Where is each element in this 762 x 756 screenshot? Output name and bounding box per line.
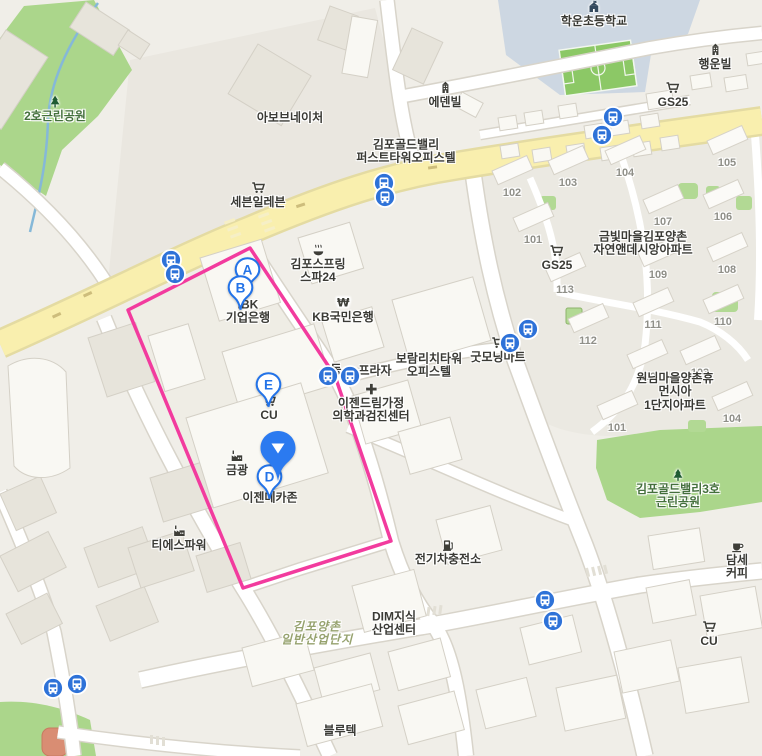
apartment-number[interactable]: 101 bbox=[524, 234, 542, 246]
poi-plaza[interactable]: 프라자 bbox=[358, 364, 391, 377]
apartment-number[interactable]: 102 bbox=[503, 187, 521, 199]
bus-stop-icon[interactable] bbox=[66, 673, 88, 695]
factory-icon bbox=[230, 449, 244, 463]
cart-icon bbox=[251, 181, 265, 195]
poi-gs25-right[interactable]: GS25 bbox=[542, 244, 573, 272]
poi-blutek[interactable]: 블루텍 bbox=[323, 724, 356, 737]
apartment-number[interactable]: 106 bbox=[714, 211, 732, 223]
coffee-icon bbox=[730, 539, 744, 553]
poi-boram-richtower-label: 보람리치타워 오피스텔 bbox=[396, 353, 462, 380]
poi-gimpo-industrial-complex[interactable]: 김포양촌 일반산업단지 bbox=[281, 621, 353, 648]
poi-goldvalley3-park[interactable]: 김포골드밸리3호 근린공원 bbox=[636, 468, 720, 510]
apartment-number[interactable]: 112 bbox=[579, 335, 597, 347]
svg-text:₩: ₩ bbox=[337, 296, 350, 310]
apartment-number[interactable]: 103 bbox=[559, 177, 577, 189]
apartment-number[interactable]: 107 bbox=[654, 216, 672, 228]
poi-seven-eleven[interactable]: 세븐일레븐 bbox=[230, 181, 285, 209]
marker-e[interactable]: E bbox=[255, 372, 282, 414]
poi-goldvalley3-park-label: 김포골드밸리3호 근린공원 bbox=[636, 483, 720, 510]
poi-hakun-elementary-label: 학운초등학교 bbox=[561, 15, 627, 28]
tree-icon bbox=[671, 468, 685, 482]
poi-cu-bottom-label: CU bbox=[700, 635, 717, 648]
poi-ev-charging-station[interactable]: 전기차충전소 bbox=[415, 538, 481, 566]
charger-icon bbox=[441, 538, 455, 552]
building-icon bbox=[438, 81, 452, 95]
cart-icon bbox=[666, 81, 680, 95]
apartment-number[interactable]: 104 bbox=[616, 167, 634, 179]
poi-dim-knowledge-center-label: DIM지식 산업센터 bbox=[372, 611, 416, 638]
factory-icon bbox=[172, 524, 186, 538]
bus-stop-icon[interactable] bbox=[534, 589, 556, 611]
cross-icon bbox=[364, 382, 378, 396]
bus-stop-icon[interactable] bbox=[374, 186, 396, 208]
poi-ezen-dream-clinic-label: 이젠드림가정 의학과검진센터 bbox=[332, 397, 409, 424]
poi-geumbit-desian-apt[interactable]: 금빛마을김포양촌 자연앤데시앙아파트 bbox=[593, 231, 692, 258]
poi-edenvil[interactable]: 에덴빌 bbox=[428, 81, 461, 109]
poi-geumgwang[interactable]: 금광 bbox=[226, 449, 248, 477]
poi-abovenature-label: 아보브네이처 bbox=[257, 111, 323, 124]
poi-gimpospring-spa24[interactable]: 김포스프링 스파24 bbox=[290, 243, 345, 285]
poi-geumbit-desian-apt-label: 금빛마을김포양촌 자연앤데시앙아파트 bbox=[593, 231, 692, 258]
poi-plaza-label: 프라자 bbox=[358, 364, 391, 377]
poi-wonnim-humansia-apt[interactable]: 원님마을양촌휴먼시아 1단지아파트 bbox=[632, 372, 719, 412]
tree-icon bbox=[48, 95, 62, 109]
apartment-number[interactable]: 111 bbox=[644, 319, 661, 331]
marker-b[interactable]: B bbox=[227, 275, 254, 317]
apartment-number[interactable]: 108 bbox=[718, 264, 736, 276]
poi-seven-eleven-label: 세븐일레븐 bbox=[230, 196, 285, 209]
svg-text:B: B bbox=[235, 280, 245, 295]
poi-park-2ho[interactable]: 2호근린공원 bbox=[24, 95, 86, 123]
poi-edenvil-label: 에덴빌 bbox=[428, 96, 461, 109]
poi-blutek-label: 블루텍 bbox=[323, 724, 356, 737]
poi-cu-bottom[interactable]: CU bbox=[700, 620, 717, 648]
poi-ev-charging-station-label: 전기차충전소 bbox=[415, 553, 481, 566]
cart-icon bbox=[550, 244, 564, 258]
poi-kb-bank[interactable]: ₩KB국민은행 bbox=[312, 296, 374, 324]
poi-damse-coffee[interactable]: 담세커피 bbox=[725, 539, 750, 581]
bus-stop-icon[interactable] bbox=[339, 365, 361, 387]
map-canvas[interactable]: 1011021031041051061071081091101111121131… bbox=[0, 0, 762, 756]
bus-stop-icon[interactable] bbox=[542, 610, 564, 632]
apartment-number[interactable]: 110 bbox=[714, 316, 732, 328]
poi-goldvalley-firsttower-label: 김포골드밸리 퍼스트타워오피스텔 bbox=[356, 139, 455, 166]
poi-ts-power[interactable]: 티에스파워 bbox=[151, 524, 206, 552]
bus-stop-icon[interactable] bbox=[42, 677, 64, 699]
poi-wonnim-humansia-apt-label: 원님마을양촌휴먼시아 1단지아파트 bbox=[632, 372, 719, 412]
marker-selected[interactable] bbox=[257, 429, 299, 490]
poi-dim-knowledge-center[interactable]: DIM지식 산업센터 bbox=[372, 611, 416, 638]
apartment-number[interactable]: 109 bbox=[649, 269, 667, 281]
poi-boram-richtower[interactable]: 보람리치타워 오피스텔 bbox=[396, 353, 462, 380]
poi-gs25-right-label: GS25 bbox=[542, 259, 573, 272]
poi-gimpospring-spa24-label: 김포스프링 스파24 bbox=[290, 258, 345, 285]
poi-ts-power-label: 티에스파워 bbox=[151, 539, 206, 552]
poi-ezen-dream-clinic[interactable]: 이젠드림가정 의학과검진센터 bbox=[332, 382, 409, 424]
bus-stop-icon[interactable] bbox=[602, 106, 624, 128]
poi-goldvalley-firsttower[interactable]: 김포골드밸리 퍼스트타워오피스텔 bbox=[356, 139, 455, 166]
poi-hakun-elementary[interactable]: 학운초등학교 bbox=[561, 0, 627, 28]
poi-haengunvil-label: 행운빌 bbox=[698, 58, 731, 71]
apartment-number[interactable]: 105 bbox=[718, 157, 736, 169]
poi-damse-coffee-label: 담세커피 bbox=[725, 554, 750, 581]
svg-text:E: E bbox=[263, 377, 272, 392]
cart-icon bbox=[702, 620, 716, 634]
apartment-number[interactable]: 113 bbox=[556, 284, 574, 296]
school-icon bbox=[587, 0, 601, 14]
poi-kb-bank-label: KB국민은행 bbox=[312, 311, 374, 324]
apartment-number[interactable]: 104 bbox=[723, 413, 741, 425]
bus-stop-icon[interactable] bbox=[317, 365, 339, 387]
apartment-number[interactable]: 101 bbox=[608, 422, 626, 434]
poi-gs25-top[interactable]: GS25 bbox=[658, 81, 689, 109]
poi-park-2ho-label: 2호근린공원 bbox=[24, 110, 86, 123]
poi-gs25-top-label: GS25 bbox=[658, 96, 689, 109]
building-icon bbox=[708, 43, 722, 57]
poi-haengunvil[interactable]: 행운빌 bbox=[698, 43, 731, 71]
bus-stop-icon[interactable] bbox=[164, 263, 186, 285]
poi-gimpo-industrial-complex-label: 김포양촌 일반산업단지 bbox=[281, 621, 353, 648]
spa-icon bbox=[311, 243, 325, 257]
poi-abovenature[interactable]: 아보브네이처 bbox=[257, 111, 323, 124]
won-icon: ₩ bbox=[336, 296, 350, 310]
poi-geumgwang-label: 금광 bbox=[226, 464, 248, 477]
bus-stop-icon[interactable] bbox=[517, 318, 539, 340]
